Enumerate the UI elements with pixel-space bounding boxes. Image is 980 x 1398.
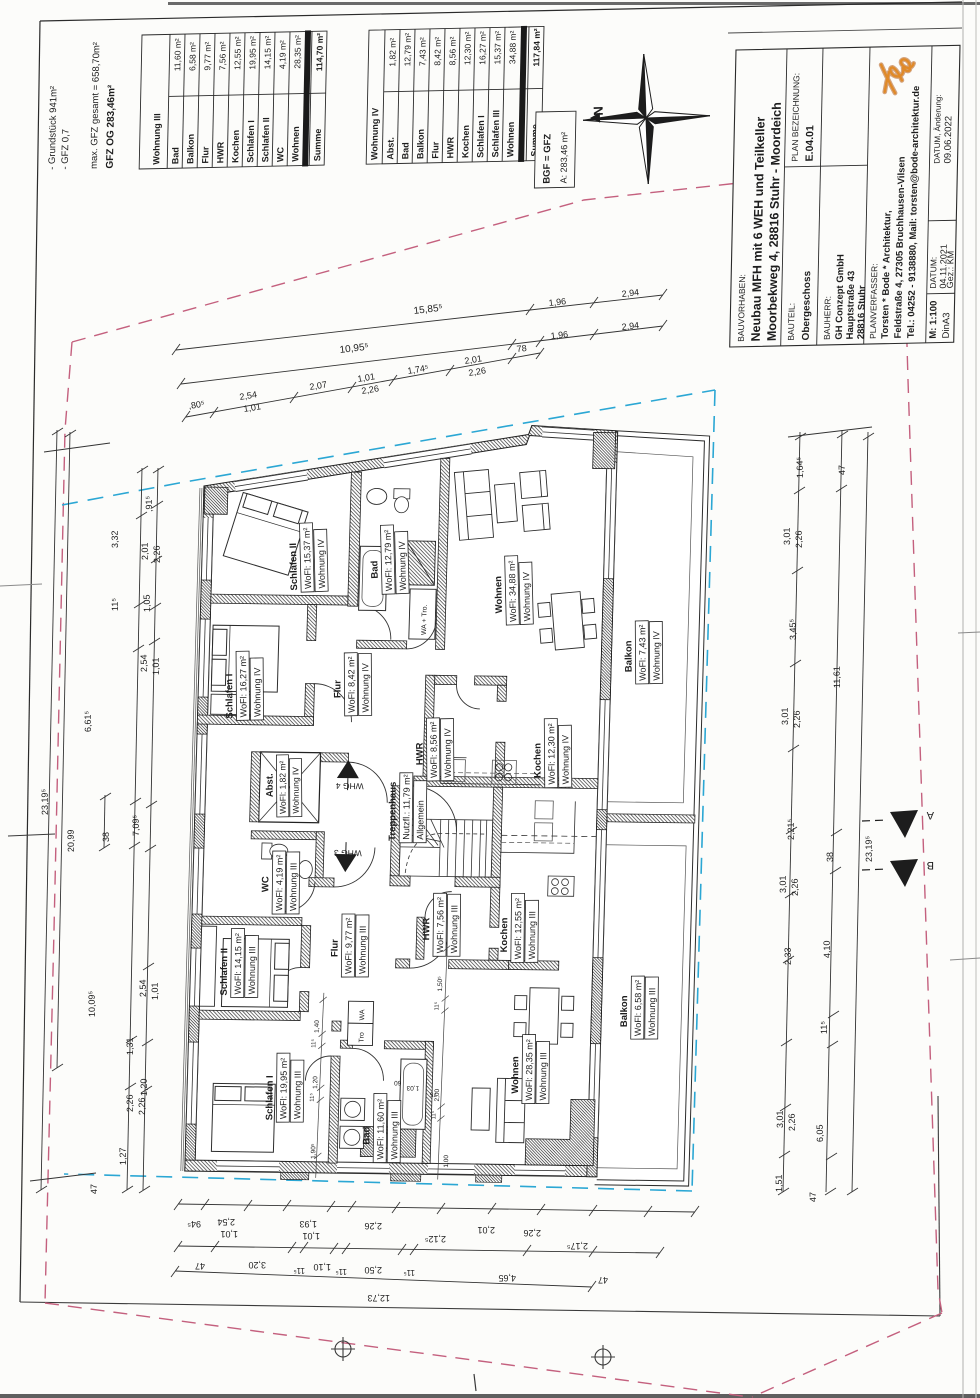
svg-text:47: 47 bbox=[195, 1261, 205, 1271]
svg-text:WoFl: 7,43 m²: WoFl: 7,43 m² bbox=[637, 624, 647, 681]
svg-text:09.06.2022: 09.06.2022 bbox=[943, 116, 955, 164]
svg-text:Bad: Bad bbox=[400, 142, 410, 159]
svg-text:2,26: 2,26 bbox=[137, 1097, 147, 1115]
svg-text:Summe: Summe bbox=[312, 129, 323, 162]
svg-text:Wohnung IV: Wohnung IV bbox=[290, 767, 300, 814]
svg-text:1,93: 1,93 bbox=[299, 1219, 317, 1229]
svg-text:Wohnung III: Wohnung III bbox=[538, 1052, 549, 1100]
svg-text:Kochen: Kochen bbox=[499, 917, 510, 952]
svg-text:WoFl: 7,56 m²: WoFl: 7,56 m² bbox=[435, 897, 446, 953]
svg-text:1,00: 1,00 bbox=[443, 1155, 450, 1168]
svg-text:4,10: 4,10 bbox=[822, 940, 832, 958]
svg-text:BAUVORHABEN:: BAUVORHABEN: bbox=[736, 274, 747, 342]
svg-text:Schlafen II: Schlafen II bbox=[288, 543, 300, 591]
svg-text:Wohnung IV: Wohnung IV bbox=[521, 572, 532, 622]
svg-text:WoFl: 12,55 m²: WoFl: 12,55 m² bbox=[513, 898, 524, 959]
svg-text:11⁵: 11⁵ bbox=[433, 1001, 440, 1010]
svg-text:WoFl: 19,95 m²: WoFl: 19,95 m² bbox=[278, 1058, 289, 1119]
svg-text:Wohnung III: Wohnung III bbox=[389, 1111, 400, 1159]
svg-text:WA: WA bbox=[359, 1009, 366, 1020]
svg-text:2,54: 2,54 bbox=[138, 979, 148, 997]
svg-text:Schlafen I: Schlafen I bbox=[245, 120, 256, 163]
svg-text:- GFZ 0,7: - GFZ 0,7 bbox=[60, 129, 72, 170]
svg-text:6,61⁵: 6,61⁵ bbox=[83, 710, 93, 732]
svg-text:Wohnung IV: Wohnung IV bbox=[316, 539, 327, 589]
svg-text:12,73: 12,73 bbox=[367, 1293, 390, 1303]
svg-text:Wohnung III: Wohnung III bbox=[151, 113, 162, 165]
svg-text:DATUM, Änderung:: DATUM, Änderung: bbox=[933, 94, 943, 163]
svg-text:Gez.: KM: Gez.: KM bbox=[945, 251, 956, 289]
svg-text:B: B bbox=[927, 859, 934, 871]
svg-text:Balkon: Balkon bbox=[623, 640, 634, 672]
svg-text:2,26: 2,26 bbox=[792, 710, 802, 728]
svg-text:WoFl: 8,42 m²: WoFl: 8,42 m² bbox=[346, 656, 356, 713]
svg-text:WoFl: 6,58 m²: WoFl: 6,58 m² bbox=[633, 980, 644, 1036]
svg-text:1,20: 1,20 bbox=[312, 1076, 319, 1089]
svg-text:HWR: HWR bbox=[215, 141, 225, 163]
svg-text:A: A bbox=[926, 809, 934, 821]
svg-text:Flur: Flur bbox=[200, 146, 210, 164]
svg-text:BAUTEIL:: BAUTEIL: bbox=[786, 303, 797, 341]
svg-text:3,01: 3,01 bbox=[782, 527, 792, 545]
svg-text:DATUM:: DATUM: bbox=[928, 257, 939, 289]
svg-text:Wohnung IV: Wohnung IV bbox=[397, 541, 408, 591]
svg-text:WoFl: 4,19 m²: WoFl: 4,19 m² bbox=[274, 855, 285, 911]
svg-text:WoFl: 12,79 m²: WoFl: 12,79 m² bbox=[383, 530, 394, 592]
svg-text:Balkon: Balkon bbox=[185, 134, 196, 164]
svg-text:19,95 m²: 19,95 m² bbox=[247, 36, 258, 70]
svg-text:2,21⁵: 2,21⁵ bbox=[786, 818, 796, 840]
svg-text:12,55 m²: 12,55 m² bbox=[232, 36, 243, 70]
svg-text:47: 47 bbox=[837, 465, 847, 475]
svg-text:,91⁵: ,91⁵ bbox=[144, 495, 154, 512]
svg-text:Wohnung III: Wohnung III bbox=[647, 988, 658, 1036]
svg-text:7,56 m²: 7,56 m² bbox=[217, 41, 228, 70]
svg-text:Schlafen I: Schlafen I bbox=[224, 674, 235, 719]
svg-text:8,56 m²: 8,56 m² bbox=[447, 36, 458, 65]
svg-text:1,01: 1,01 bbox=[151, 657, 161, 675]
svg-text:117,84 m²: 117,84 m² bbox=[531, 28, 542, 67]
svg-text:Flur: Flur bbox=[332, 680, 343, 698]
svg-text:1,40: 1,40 bbox=[314, 1020, 321, 1033]
svg-text:1,20: 1,20 bbox=[139, 1078, 149, 1096]
svg-text:WoFl: 28,35 m²: WoFl: 28,35 m² bbox=[524, 1039, 535, 1100]
svg-text:28,35 m²: 28,35 m² bbox=[292, 35, 303, 69]
svg-text:11⁵: 11⁵ bbox=[309, 1093, 316, 1102]
svg-text:11⁵: 11⁵ bbox=[335, 1267, 347, 1276]
svg-text:Bad: Bad bbox=[369, 560, 380, 579]
svg-text:Kochen: Kochen bbox=[532, 743, 543, 778]
svg-text:Schlafen I: Schlafen I bbox=[475, 115, 486, 158]
svg-text:1,01: 1,01 bbox=[220, 1229, 238, 1239]
svg-text:Wohnung III: Wohnung III bbox=[288, 863, 299, 911]
svg-text:Wohnen: Wohnen bbox=[510, 1056, 521, 1094]
svg-text:Bad: Bad bbox=[361, 1126, 372, 1144]
svg-text:WoFl: 34,88 m²: WoFl: 34,88 m² bbox=[507, 560, 518, 622]
svg-text:WoFl: 12,30 m²: WoFl: 12,30 m² bbox=[546, 723, 556, 785]
svg-text:11⁵: 11⁵ bbox=[819, 1021, 829, 1035]
svg-text:2,01: 2,01 bbox=[477, 1225, 495, 1235]
svg-text:16,27 m²: 16,27 m² bbox=[477, 31, 488, 65]
svg-text:DinA3: DinA3 bbox=[941, 312, 953, 338]
svg-text:11,60 m²: 11,60 m² bbox=[172, 38, 183, 71]
svg-text:Balkon: Balkon bbox=[415, 129, 426, 159]
svg-text:1,05: 1,05 bbox=[142, 594, 152, 612]
svg-text:47: 47 bbox=[808, 1192, 818, 1202]
svg-text:12,79 m²: 12,79 m² bbox=[402, 33, 413, 67]
svg-text:3,01: 3,01 bbox=[778, 875, 788, 893]
svg-text:Abst.: Abst. bbox=[385, 137, 395, 160]
svg-text:1,64⁵: 1,64⁵ bbox=[795, 456, 805, 478]
svg-text:WoFl: 15,37 m²: WoFl: 15,37 m² bbox=[302, 527, 313, 589]
svg-text:WC: WC bbox=[260, 876, 271, 892]
svg-text:Kochen: Kochen bbox=[460, 125, 471, 158]
svg-text:Flur: Flur bbox=[430, 141, 440, 159]
svg-text:Flur: Flur bbox=[330, 939, 341, 957]
svg-text:BGF = GFZ: BGF = GFZ bbox=[541, 134, 553, 184]
svg-text:60: 60 bbox=[394, 1079, 402, 1086]
svg-text:11⁵: 11⁵ bbox=[110, 598, 120, 612]
svg-text:1,01: 1,01 bbox=[150, 982, 160, 1000]
svg-text:3,32: 3,32 bbox=[110, 530, 120, 548]
svg-text:WoFl: 8,56 m²: WoFl: 8,56 m² bbox=[428, 722, 438, 779]
svg-text:2,26: 2,26 bbox=[523, 1228, 541, 1238]
svg-text:1,27: 1,27 bbox=[118, 1147, 128, 1165]
svg-text:WoFl: 11,60 m²: WoFl: 11,60 m² bbox=[375, 1099, 386, 1160]
svg-text:1,10: 1,10 bbox=[313, 1262, 331, 1272]
svg-text:Wohnen: Wohnen bbox=[493, 576, 505, 614]
svg-text:2,01: 2,01 bbox=[140, 542, 150, 560]
svg-text:11⁵: 11⁵ bbox=[430, 1110, 437, 1119]
svg-text:1,01: 1,01 bbox=[302, 1231, 320, 1241]
svg-text:GFZ OG 283,46m²: GFZ OG 283,46m² bbox=[105, 84, 118, 169]
svg-text:Schlafen II: Schlafen II bbox=[260, 117, 271, 162]
svg-text:Wohnung III: Wohnung III bbox=[292, 1071, 303, 1119]
svg-text:2,26: 2,26 bbox=[787, 1113, 797, 1131]
svg-text:11⁵: 11⁵ bbox=[310, 1039, 317, 1048]
svg-text:2,26: 2,26 bbox=[790, 878, 800, 896]
svg-text:WHG 4: WHG 4 bbox=[335, 781, 363, 791]
svg-text:4,19 m²: 4,19 m² bbox=[277, 40, 288, 69]
svg-text:WC: WC bbox=[275, 146, 285, 162]
svg-text:WoFl: 16,27 m²: WoFl: 16,27 m² bbox=[238, 656, 248, 718]
svg-text:11⁵: 11⁵ bbox=[293, 1266, 305, 1275]
svg-text:Wohnung IV: Wohnung IV bbox=[360, 663, 370, 713]
svg-text:E.04.01: E.04.01 bbox=[804, 125, 817, 162]
svg-text:9,77 m²: 9,77 m² bbox=[202, 42, 213, 71]
svg-text:1,50⁵: 1,50⁵ bbox=[437, 976, 444, 992]
svg-text:WA + Tro.: WA + Tro. bbox=[421, 604, 429, 635]
svg-text:7,09⁵: 7,09⁵ bbox=[131, 814, 141, 836]
svg-text:M: 1:100: M: 1:100 bbox=[928, 301, 940, 339]
svg-text:Wohnung IV: Wohnung IV bbox=[443, 728, 453, 778]
svg-text:HWR: HWR bbox=[445, 136, 455, 158]
svg-text:Wohnung IV: Wohnung IV bbox=[369, 108, 380, 161]
svg-text:3,01: 3,01 bbox=[775, 1110, 785, 1128]
svg-text:A: 283,46 m²: A: 283,46 m² bbox=[558, 132, 569, 184]
svg-text:2,94: 2,94 bbox=[621, 320, 640, 332]
svg-text:WoFl: 14,15 m²: WoFl: 14,15 m² bbox=[233, 933, 244, 994]
svg-text:2,50: 2,50 bbox=[364, 1265, 382, 1275]
svg-text:11⁵: 11⁵ bbox=[403, 1268, 415, 1277]
svg-text:15,37 m²: 15,37 m² bbox=[492, 31, 503, 65]
svg-text:8,42 m²: 8,42 m² bbox=[432, 37, 443, 66]
svg-text:HWR: HWR bbox=[421, 917, 432, 940]
svg-text:34,88 m²: 34,88 m² bbox=[507, 30, 518, 64]
svg-text:HWR: HWR bbox=[415, 742, 426, 765]
svg-text:Tro: Tro bbox=[358, 1032, 365, 1042]
svg-text:11,61: 11,61 bbox=[832, 666, 842, 688]
svg-text:Abst.: Abst. bbox=[265, 773, 276, 797]
svg-text:WoFl: 1,82 m²: WoFl: 1,82 m² bbox=[277, 760, 287, 814]
svg-text:Wohnen: Wohnen bbox=[290, 126, 301, 162]
svg-text:Allgemein: Allgemein bbox=[415, 800, 425, 840]
svg-text:12,30 m²: 12,30 m² bbox=[462, 31, 473, 65]
svg-text:Schlafen III: Schlafen III bbox=[490, 110, 501, 158]
svg-text:94⁵: 94⁵ bbox=[187, 1219, 201, 1229]
svg-text:PLAN BEZEICHNUNG:: PLAN BEZEICHNUNG: bbox=[790, 73, 802, 162]
svg-text:10,09⁵: 10,09⁵ bbox=[87, 990, 97, 1017]
svg-text:2,17⁵: 2,17⁵ bbox=[566, 1241, 588, 1251]
svg-text:23,19⁵: 23,19⁵ bbox=[864, 835, 874, 862]
svg-text:2,26: 2,26 bbox=[794, 530, 804, 548]
svg-text:2,54: 2,54 bbox=[139, 654, 149, 672]
svg-text:2,94: 2,94 bbox=[621, 287, 640, 299]
svg-text:2,26: 2,26 bbox=[364, 1221, 382, 1231]
svg-text:1,51: 1,51 bbox=[774, 1174, 784, 1192]
svg-text:Treppenhaus: Treppenhaus bbox=[387, 782, 399, 841]
svg-text:6,58 m²: 6,58 m² bbox=[187, 42, 198, 71]
svg-text:1,96: 1,96 bbox=[550, 329, 569, 341]
svg-text:Kochen: Kochen bbox=[230, 130, 241, 163]
svg-text:75: 75 bbox=[429, 1090, 437, 1097]
svg-text:Wohnung III: Wohnung III bbox=[357, 926, 368, 974]
svg-text:Schlafen I: Schlafen I bbox=[264, 1075, 275, 1120]
svg-text:4,65: 4,65 bbox=[498, 1273, 516, 1283]
svg-text:114,70 m²: 114,70 m² bbox=[314, 33, 325, 72]
svg-text:23,19⁵: 23,19⁵ bbox=[40, 788, 50, 815]
svg-text:BAUHERR:: BAUHERR: bbox=[822, 296, 833, 340]
svg-text:Wohnung IV: Wohnung IV bbox=[651, 631, 661, 681]
svg-text:2,54: 2,54 bbox=[217, 1217, 235, 1227]
svg-text:2,26: 2,26 bbox=[152, 545, 162, 563]
svg-text:3,01: 3,01 bbox=[780, 707, 790, 725]
svg-text:47: 47 bbox=[598, 1275, 608, 1285]
svg-text:2,12⁵: 2,12⁵ bbox=[424, 1234, 446, 1244]
svg-text:6,05: 6,05 bbox=[815, 1124, 825, 1142]
svg-text:Obergeschoss: Obergeschoss bbox=[801, 270, 813, 340]
svg-text:38: 38 bbox=[825, 852, 835, 862]
svg-text:7,43 m²: 7,43 m² bbox=[417, 37, 428, 66]
svg-text:1,96: 1,96 bbox=[548, 296, 567, 308]
svg-text:3,45⁵: 3,45⁵ bbox=[788, 618, 798, 640]
svg-text:1,82 m²: 1,82 m² bbox=[387, 38, 398, 67]
svg-text:78: 78 bbox=[516, 343, 527, 354]
svg-text:2,33: 2,33 bbox=[783, 947, 793, 965]
svg-text:PLANVERFASSER:: PLANVERFASSER: bbox=[868, 263, 880, 339]
svg-text:Wohnung IV: Wohnung IV bbox=[252, 668, 262, 718]
svg-text:Bad: Bad bbox=[170, 147, 180, 164]
svg-text:2,26: 2,26 bbox=[125, 1094, 135, 1112]
svg-text:Wohnung III: Wohnung III bbox=[449, 905, 460, 953]
svg-text:Wohnung III: Wohnung III bbox=[247, 946, 258, 994]
svg-text:Schlafen II: Schlafen II bbox=[219, 948, 231, 996]
svg-text:Wohnung III: Wohnung III bbox=[527, 911, 538, 959]
svg-text:WoFl: 9,77 m²: WoFl: 9,77 m² bbox=[343, 918, 354, 974]
svg-text:28816 Stuhr: 28816 Stuhr bbox=[856, 285, 868, 339]
svg-text:1,31: 1,31 bbox=[125, 1037, 135, 1055]
svg-text:- Grundstück 941m²: - Grundstück 941m² bbox=[47, 86, 60, 170]
svg-text:Nutzfl.: 11,79 m²: Nutzfl.: 11,79 m² bbox=[401, 774, 412, 839]
svg-text:1,90⁵: 1,90⁵ bbox=[310, 1143, 317, 1159]
svg-text:14,15 m²: 14,15 m² bbox=[262, 36, 273, 70]
svg-text:Balkon: Balkon bbox=[619, 995, 630, 1027]
svg-text:3,20: 3,20 bbox=[248, 1260, 266, 1270]
svg-text:Wohnung IV: Wohnung IV bbox=[560, 735, 570, 785]
svg-text:47: 47 bbox=[89, 1184, 99, 1194]
svg-text:1,03: 1,03 bbox=[406, 1084, 419, 1091]
svg-text:38: 38 bbox=[101, 832, 111, 842]
svg-text:WHG 3: WHG 3 bbox=[334, 848, 362, 858]
svg-text:Wohnen: Wohnen bbox=[505, 122, 516, 158]
svg-text:20,99: 20,99 bbox=[66, 829, 76, 852]
